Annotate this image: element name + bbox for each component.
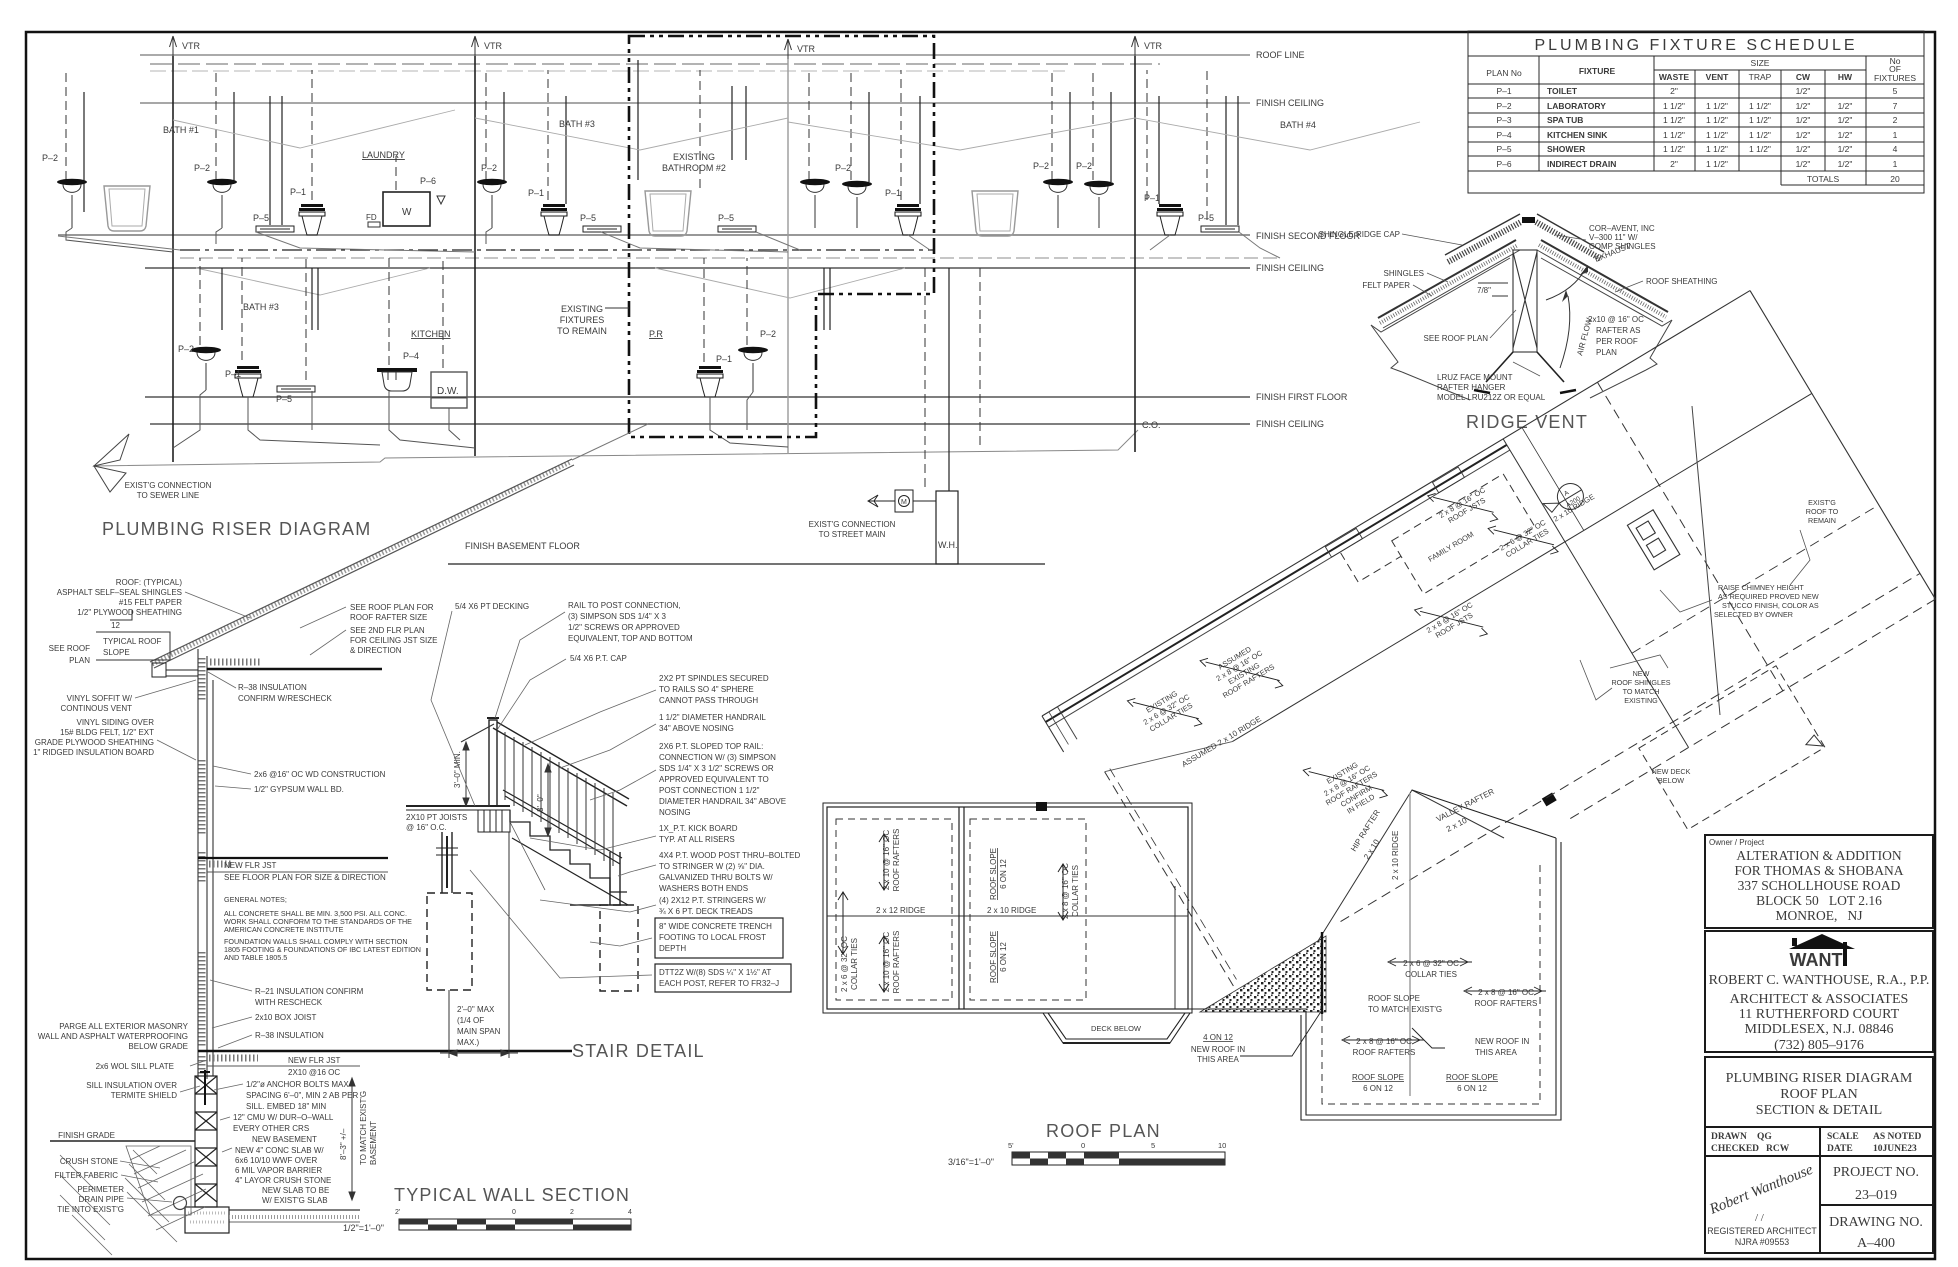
svg-text:SPACING 6'–0", MIN 2 AB PER: SPACING 6'–0", MIN 2 AB PER: [246, 1091, 358, 1100]
svg-text:NEW: NEW: [1633, 669, 1650, 678]
svg-text:ROOF RAFTERS: ROOF RAFTERS: [1475, 999, 1538, 1008]
svg-text:FIXTURES: FIXTURES: [560, 315, 605, 325]
svg-text:FELT PAPER: FELT PAPER: [1362, 281, 1410, 290]
svg-text:12: 12: [111, 621, 120, 630]
svg-text:DRAIN PIPE: DRAIN PIPE: [79, 1195, 124, 1204]
svg-text:PROJECT NO.: PROJECT NO.: [1833, 1165, 1919, 1180]
svg-text:EXISTING: EXISTING: [561, 304, 603, 314]
svg-text:P–2: P–2: [1076, 161, 1092, 171]
svg-text:P–1: P–1: [290, 187, 306, 197]
svg-text:SPA TUB: SPA TUB: [1547, 115, 1583, 125]
svg-text:SILL. EMBED 18" MIN: SILL. EMBED 18" MIN: [246, 1102, 326, 1111]
svg-text:P–2: P–2: [481, 163, 497, 173]
svg-text:CONNECTION W/ (3) SIMPSON: CONNECTION W/ (3) SIMPSON: [659, 753, 776, 762]
svg-text:W.H.: W.H.: [938, 540, 958, 550]
svg-text:THIS AREA: THIS AREA: [1475, 1048, 1517, 1057]
svg-text:P–6: P–6: [1496, 159, 1511, 169]
svg-text:1 1/2": 1 1/2": [1706, 144, 1728, 154]
svg-text:ALTERATION & ADDITION: ALTERATION & ADDITION: [1736, 848, 1901, 863]
svg-text:2x10 @ 16" OC: 2x10 @ 16" OC: [1588, 315, 1644, 324]
svg-text:TIE INTO EXIST'G: TIE INTO EXIST'G: [57, 1205, 124, 1214]
svg-text:FOR THOMAS & SHOBANA: FOR THOMAS & SHOBANA: [1735, 863, 1904, 878]
svg-text:HW: HW: [1838, 72, 1853, 82]
svg-text:NEW FLR JST: NEW FLR JST: [224, 861, 277, 870]
svg-text:PLUMBING RISER DIAGRAM: PLUMBING RISER DIAGRAM: [102, 519, 371, 539]
svg-text:W: W: [402, 207, 412, 218]
svg-text:AMERICAN CONCRETE INSTITUTE: AMERICAN CONCRETE INSTITUTE: [224, 925, 344, 934]
svg-text:2 x 8 @ 16" OC: 2 x 8 @ 16" OC: [1478, 988, 1534, 997]
svg-text:4" LAYOR CRUSH STONE: 4" LAYOR CRUSH STONE: [235, 1176, 331, 1185]
svg-text:SEE ROOF: SEE ROOF: [49, 644, 90, 653]
svg-text:1/2": 1/2": [1796, 115, 1811, 125]
svg-text:DIAMETER HANDRAIL 34" ABOVE: DIAMETER HANDRAIL 34" ABOVE: [659, 797, 786, 806]
svg-text:GRADE PLYWOOD SHEATHING: GRADE PLYWOOD SHEATHING: [35, 738, 154, 747]
svg-text:PLAN No: PLAN No: [1486, 68, 1522, 78]
svg-text:FINISH CEILING: FINISH CEILING: [1256, 98, 1324, 108]
svg-text:COLLAR TIES: COLLAR TIES: [850, 938, 859, 990]
svg-text:ROOF RAFTERS: ROOF RAFTERS: [892, 829, 901, 892]
svg-text:P–4: P–4: [1496, 130, 1511, 140]
svg-text:1 1/2": 1 1/2": [1749, 144, 1771, 154]
svg-text:SECTION & DETAIL: SECTION & DETAIL: [1756, 1103, 1882, 1118]
svg-text:NEW BASEMENT: NEW BASEMENT: [252, 1135, 317, 1144]
svg-text:NEW ROOF IN: NEW ROOF IN: [1475, 1037, 1529, 1046]
svg-text:2x6 @16" OC WD CONSTRUCTION: 2x6 @16" OC WD CONSTRUCTION: [254, 770, 386, 779]
svg-text:EACH POST, REFER TO FR32–J: EACH POST, REFER TO FR32–J: [659, 979, 779, 988]
svg-text:2X2 PT SPINDLES SECURED: 2X2 PT SPINDLES SECURED: [659, 674, 769, 683]
svg-text:NEW FLR JST: NEW FLR JST: [288, 1056, 341, 1065]
svg-text:KITCHEN: KITCHEN: [411, 329, 451, 339]
svg-text:7: 7: [1893, 101, 1898, 111]
svg-text:2 x 8 @ 16" OC: 2 x 8 @ 16" OC: [1061, 863, 1070, 919]
svg-text:BATH #3: BATH #3: [559, 119, 595, 129]
svg-text:15# BLDG FELT, 1/2" EXT: 15# BLDG FELT, 1/2" EXT: [60, 728, 154, 737]
svg-text:P–2: P–2: [760, 329, 776, 339]
svg-text:WANT: WANT: [1790, 950, 1843, 970]
svg-text:SIZE: SIZE: [1751, 58, 1770, 68]
svg-text:RIDGE VENT: RIDGE VENT: [1466, 412, 1588, 432]
svg-text:2X6 P.T. SLOPED TOP RAIL:: 2X6 P.T. SLOPED TOP RAIL:: [659, 742, 763, 751]
svg-text:PLUMBING FIXTURE SCHEDULE: PLUMBING FIXTURE SCHEDULE: [1534, 37, 1857, 54]
svg-text:FOOTING TO LOCAL FROST: FOOTING TO LOCAL FROST: [659, 933, 766, 942]
svg-text:REMAIN: REMAIN: [1808, 516, 1836, 525]
svg-text:M: M: [901, 499, 907, 506]
svg-text:FD: FD: [366, 213, 377, 222]
svg-text:6 ON 12: 6 ON 12: [999, 942, 1008, 972]
svg-text:KITCHEN SINK: KITCHEN SINK: [1547, 130, 1608, 140]
svg-text:TO STRINGER W (2) ⅝" DIA.: TO STRINGER W (2) ⅝" DIA.: [659, 862, 765, 871]
svg-text:P–5: P–5: [580, 213, 596, 223]
svg-text:34" ABOVE NOSING: 34" ABOVE NOSING: [659, 724, 734, 733]
svg-text:1/2": 1/2": [1838, 144, 1853, 154]
svg-text:TYP. AT ALL RISERS: TYP. AT ALL RISERS: [659, 835, 735, 844]
svg-text:2: 2: [1893, 115, 1898, 125]
svg-text:TOTALS: TOTALS: [1807, 174, 1840, 184]
svg-text:P–1: P–1: [1144, 193, 1160, 203]
svg-text:COMP SHINGLES: COMP SHINGLES: [1589, 242, 1656, 251]
svg-text:DATE: DATE: [1827, 1144, 1853, 1154]
svg-text:2 x 10 RIDGE: 2 x 10 RIDGE: [987, 906, 1036, 915]
svg-text:P.R: P.R: [649, 329, 663, 339]
svg-text:1 1/2": 1 1/2": [1663, 115, 1685, 125]
svg-text:4: 4: [628, 1209, 632, 1216]
svg-text:VTR: VTR: [182, 41, 201, 51]
svg-text:MONROE, NJ: MONROE, NJ: [1775, 908, 1862, 923]
svg-text:P–5: P–5: [718, 213, 734, 223]
svg-text:SDS 1/4" X 3 1/2" SCREWS OR: SDS 1/4" X 3 1/2" SCREWS OR: [659, 764, 774, 773]
svg-text:LAUNDRY: LAUNDRY: [362, 150, 405, 160]
svg-text:EXIST'G CONNECTION: EXIST'G CONNECTION: [125, 481, 212, 490]
svg-text:1/2" SCREWS OR APPROVED: 1/2" SCREWS OR APPROVED: [568, 623, 680, 632]
svg-text:P–2: P–2: [835, 163, 851, 173]
svg-text:2 x 6 @ 32" OC: 2 x 6 @ 32" OC: [1403, 959, 1459, 968]
svg-text:6 ON 12: 6 ON 12: [1457, 1084, 1487, 1093]
svg-text:5: 5: [1893, 86, 1898, 96]
svg-text:WALL AND ASPHALT WATERPROOFING: WALL AND ASPHALT WATERPROOFING: [38, 1032, 188, 1041]
svg-text:1 1/2": 1 1/2": [1749, 101, 1771, 111]
svg-text:SEE ROOF PLAN FOR: SEE ROOF PLAN FOR: [350, 603, 434, 612]
svg-text:DEPTH: DEPTH: [659, 944, 686, 953]
svg-text:NOSING: NOSING: [659, 808, 691, 817]
svg-text:TO SEWER LINE: TO SEWER LINE: [137, 491, 200, 500]
svg-text:A–400: A–400: [1857, 1236, 1895, 1251]
svg-text:ROOF TO: ROOF TO: [1806, 507, 1839, 516]
svg-text:1/2"ø ANCHOR BOLTS MAX: 1/2"ø ANCHOR BOLTS MAX: [246, 1080, 349, 1089]
svg-text:BELOW GRADE: BELOW GRADE: [128, 1042, 188, 1051]
svg-text:20: 20: [1890, 174, 1900, 184]
svg-text:ROOF SHEATHING: ROOF SHEATHING: [1646, 277, 1717, 286]
svg-text:DTT2Z W/(8) SDS ¼" X 1½" AT: DTT2Z W/(8) SDS ¼" X 1½" AT: [659, 968, 771, 977]
svg-text:2: 2: [570, 1209, 574, 1216]
svg-text:SHOWER: SHOWER: [1547, 144, 1585, 154]
svg-text:FILTER FABERIC: FILTER FABERIC: [55, 1171, 119, 1180]
svg-text:PLAN: PLAN: [1596, 348, 1617, 357]
svg-text:NEW DECK: NEW DECK: [1652, 767, 1691, 776]
svg-text:(1/4 OF: (1/4 OF: [457, 1016, 484, 1025]
svg-text:/ /: / /: [1755, 1212, 1765, 1224]
svg-text:P–1: P–1: [225, 369, 241, 379]
svg-text:P–2: P–2: [194, 163, 210, 173]
svg-text:CHECKED: CHECKED: [1711, 1144, 1759, 1154]
svg-text:W/ EXIST'G SLAB: W/ EXIST'G SLAB: [262, 1196, 328, 1205]
svg-text:EXISTING: EXISTING: [673, 152, 715, 162]
svg-text:VENT: VENT: [1706, 72, 1729, 82]
svg-text:R–38 INSULATION: R–38 INSULATION: [255, 1031, 324, 1040]
svg-text:SEE FLOOR PLAN FOR SIZE & DIRE: SEE FLOOR PLAN FOR SIZE & DIRECTION: [224, 873, 386, 882]
svg-text:3'–0": 3'–0": [536, 794, 545, 812]
svg-text:P–3: P–3: [1496, 115, 1511, 125]
svg-text:P–2: P–2: [1496, 101, 1511, 111]
svg-text:ARCHITECT & ASSOCIATES: ARCHITECT & ASSOCIATES: [1730, 992, 1909, 1007]
svg-text:2 x 6 @ 32" OC: 2 x 6 @ 32" OC: [840, 936, 849, 992]
svg-text:APPROVED EQUIVALENT TO: APPROVED EQUIVALENT TO: [659, 775, 769, 784]
svg-text:2 x 12 RIDGE: 2 x 12 RIDGE: [876, 906, 925, 915]
svg-text:ROOF PLAN: ROOF PLAN: [1046, 1121, 1161, 1141]
svg-text:TERMITE SHIELD: TERMITE SHIELD: [111, 1091, 177, 1100]
svg-text:2 x 8 @ 16" OC: 2 x 8 @ 16" OC: [1356, 1037, 1412, 1046]
svg-text:VINYL SIDING OVER: VINYL SIDING OVER: [77, 718, 155, 727]
svg-text:SELECTED BY OWNER: SELECTED BY OWNER: [1714, 610, 1793, 619]
svg-text:SHINGLES: SHINGLES: [1384, 269, 1424, 278]
svg-text:FINISH CEILING: FINISH CEILING: [1256, 263, 1324, 273]
svg-text:DRAWN: DRAWN: [1711, 1132, 1747, 1142]
svg-text:ROOF RAFTERS: ROOF RAFTERS: [892, 931, 901, 994]
svg-text:1 1/2": 1 1/2": [1663, 101, 1685, 111]
svg-text:ROOF SLOPE: ROOF SLOPE: [1352, 1073, 1404, 1082]
svg-text:VTR: VTR: [484, 41, 503, 51]
svg-text:ROOF PLAN: ROOF PLAN: [1780, 1087, 1857, 1102]
svg-text:CRUSH STONE: CRUSH STONE: [60, 1157, 118, 1166]
svg-text:1: 1: [1893, 159, 1898, 169]
svg-text:C.O.: C.O.: [1142, 420, 1161, 430]
svg-text:1 1/2": 1 1/2": [1706, 115, 1728, 125]
svg-text:FOR CEILING JST SIZE: FOR CEILING JST SIZE: [350, 636, 437, 645]
svg-text:(732) 805–9176: (732) 805–9176: [1774, 1038, 1864, 1053]
svg-text:P–1: P–1: [885, 188, 901, 198]
svg-text:FINISH GRADE: FINISH GRADE: [58, 1131, 115, 1140]
svg-text:SLOPE: SLOPE: [103, 648, 130, 657]
svg-text:2'–0" MAX: 2'–0" MAX: [457, 1005, 495, 1014]
svg-text:P–1: P–1: [716, 354, 732, 364]
svg-text:ASPHALT SELF–SEAL SHINGLES: ASPHALT SELF–SEAL SHINGLES: [57, 588, 182, 597]
svg-text:ROOF SLOPE: ROOF SLOPE: [1446, 1073, 1498, 1082]
svg-text:1/2": 1/2": [1796, 130, 1811, 140]
svg-text:EXIST'G: EXIST'G: [1808, 498, 1836, 507]
svg-text:TO MATCH: TO MATCH: [1623, 687, 1660, 696]
svg-text:1 1/2": 1 1/2": [1749, 115, 1771, 125]
svg-text:VTR: VTR: [1144, 41, 1163, 51]
svg-text:D.W.: D.W.: [437, 386, 459, 397]
svg-text:INDIRECT DRAIN: INDIRECT DRAIN: [1547, 159, 1616, 169]
svg-text:4X4 P.T. WOOD POST THRU–BOLTED: 4X4 P.T. WOOD POST THRU–BOLTED: [659, 851, 800, 860]
svg-text:7/8": 7/8": [1477, 286, 1491, 295]
svg-text:PLAN: PLAN: [69, 656, 90, 665]
svg-text:LABORATORY: LABORATORY: [1547, 101, 1606, 111]
svg-text:1/2" PLYWOOD SHEATHING: 1/2" PLYWOOD SHEATHING: [77, 608, 182, 617]
svg-text:FINISH FIRST FLOOR: FINISH FIRST FLOOR: [1256, 392, 1348, 402]
svg-text:SCALE: SCALE: [1827, 1132, 1859, 1142]
svg-text:AS REQUIRED PROVED NEW: AS REQUIRED PROVED NEW: [1718, 592, 1819, 601]
svg-text:AS NOTED: AS NOTED: [1873, 1132, 1921, 1142]
svg-text:1" RIDGED INSULATION BOARD: 1" RIDGED INSULATION BOARD: [33, 748, 154, 757]
svg-text:P–2: P–2: [42, 153, 58, 163]
svg-text:2x6 WOL SILL PLATE: 2x6 WOL SILL PLATE: [96, 1062, 174, 1071]
svg-text:0: 0: [1081, 1141, 1085, 1150]
svg-text:COLLAR TIES: COLLAR TIES: [1071, 865, 1080, 917]
svg-text:5: 5: [1151, 1141, 1155, 1150]
svg-text:VTR: VTR: [797, 44, 816, 54]
svg-text:GENERAL NOTES;: GENERAL NOTES;: [224, 895, 287, 904]
svg-text:FINISH BASEMENT FLOOR: FINISH BASEMENT FLOOR: [465, 541, 580, 551]
svg-text:TO REMAIN: TO REMAIN: [557, 326, 607, 336]
svg-text:6x6 10/10 WWF OVER: 6x6 10/10 WWF OVER: [235, 1156, 317, 1165]
svg-text:MAIN SPAN: MAIN SPAN: [457, 1027, 501, 1036]
svg-text:337 SCHOLLHOUSE ROAD: 337 SCHOLLHOUSE ROAD: [1738, 878, 1901, 893]
svg-text:1 1/2": 1 1/2": [1663, 130, 1685, 140]
svg-text:BLOCK 50 LOT 2.16: BLOCK 50 LOT 2.16: [1756, 893, 1882, 908]
svg-text:COR–AVENT, INC: COR–AVENT, INC: [1589, 224, 1655, 233]
svg-text:5/4 X6 PT DECKING: 5/4 X6 PT DECKING: [455, 602, 529, 611]
svg-text:5/4 X6 P.T. CAP: 5/4 X6 P.T. CAP: [570, 654, 627, 663]
svg-text:TOILET: TOILET: [1547, 86, 1578, 96]
svg-text:ROOF LINE: ROOF LINE: [1256, 50, 1305, 60]
svg-text:DECK BELOW: DECK BELOW: [1091, 1024, 1142, 1033]
svg-text:ROOF SHINGLES: ROOF SHINGLES: [1611, 678, 1670, 687]
svg-text:TO RAILS SO 4" SPHERE: TO RAILS SO 4" SPHERE: [659, 685, 754, 694]
svg-text:CW: CW: [1796, 72, 1811, 82]
svg-text:BATH #3: BATH #3: [243, 302, 279, 312]
svg-text:4: 4: [1893, 144, 1898, 154]
svg-text:EVERY OTHER CRS: EVERY OTHER CRS: [233, 1124, 309, 1133]
svg-text:1 1/2": 1 1/2": [1706, 101, 1728, 111]
svg-text:STAIR DETAIL: STAIR DETAIL: [572, 1041, 705, 1061]
svg-text:1/2": 1/2": [1838, 130, 1853, 140]
svg-text:ROOF SLOPE: ROOF SLOPE: [989, 931, 998, 983]
svg-text:DRAWING NO.: DRAWING NO.: [1829, 1215, 1923, 1230]
svg-text:CANNOT PASS THROUGH: CANNOT PASS THROUGH: [659, 696, 758, 705]
svg-text:V–300 11" W/: V–300 11" W/: [1589, 233, 1638, 242]
svg-text:EXISTING: EXISTING: [1624, 696, 1658, 705]
svg-text:1/2"=1'–0": 1/2"=1'–0": [343, 1223, 384, 1233]
svg-text:¾ X 6 PT. DECK TREADS: ¾ X 6 PT. DECK TREADS: [659, 907, 753, 916]
svg-text:P–5: P–5: [253, 213, 269, 223]
svg-text:6 ON 12: 6 ON 12: [1363, 1084, 1393, 1093]
svg-text:2': 2': [395, 1209, 400, 1216]
svg-text:11 RUTHERFORD COURT: 11 RUTHERFORD COURT: [1739, 1007, 1900, 1022]
svg-text:6 ON 12: 6 ON 12: [999, 859, 1008, 889]
svg-text:CONFIRM W/RESCHECK: CONFIRM W/RESCHECK: [238, 694, 332, 703]
svg-text:MODEL LRU212Z OR EQUAL: MODEL LRU212Z OR EQUAL: [1437, 393, 1546, 402]
svg-text:POST CONNECTION 1 1/2": POST CONNECTION 1 1/2": [659, 786, 760, 795]
svg-text:PERIMETER: PERIMETER: [77, 1185, 124, 1194]
svg-text:1/2": 1/2": [1838, 101, 1853, 111]
svg-text:P–4: P–4: [403, 351, 419, 361]
svg-text:ROBERT C. WANTHOUSE, R.A., P.P: ROBERT C. WANTHOUSE, R.A., P.P.: [1709, 973, 1930, 988]
svg-text:NEW ROOF IN: NEW ROOF IN: [1191, 1045, 1245, 1054]
svg-text:BATH #4: BATH #4: [1280, 120, 1316, 130]
svg-text:12" CMU W/ DUR–O–WALL: 12" CMU W/ DUR–O–WALL: [233, 1113, 334, 1122]
svg-text:R–21 INSULATION CONFIRM: R–21 INSULATION CONFIRM: [255, 987, 364, 996]
svg-text:TYPICAL WALL SECTION: TYPICAL WALL SECTION: [394, 1185, 630, 1205]
svg-text:EXIST'G CONNECTION: EXIST'G CONNECTION: [809, 520, 896, 529]
svg-text:2x10 BOX JOIST: 2x10 BOX JOIST: [255, 1013, 316, 1022]
svg-text:ROOF RAFTER SIZE: ROOF RAFTER SIZE: [350, 613, 427, 622]
svg-text:WASHERS BOTH ENDS: WASHERS BOTH ENDS: [659, 884, 748, 893]
svg-text:2X10 @16 OC: 2X10 @16 OC: [288, 1068, 340, 1077]
svg-text:23–019: 23–019: [1855, 1188, 1897, 1203]
svg-text:& DIRECTION: & DIRECTION: [350, 646, 402, 655]
svg-text:GALVANIZED THRU BOLTS W/: GALVANIZED THRU BOLTS W/: [659, 873, 773, 882]
svg-text:P–5: P–5: [276, 394, 292, 404]
svg-text:1 1/2": 1 1/2": [1749, 130, 1771, 140]
svg-text:MIDDLESEX, N.J. 08846: MIDDLESEX, N.J. 08846: [1745, 1022, 1894, 1037]
svg-text:RAFTER AS: RAFTER AS: [1596, 326, 1640, 335]
svg-text:AND TABLE 1805.5: AND TABLE 1805.5: [224, 953, 287, 962]
svg-text:BATH #1: BATH #1: [163, 125, 199, 135]
svg-text:5': 5': [1008, 1141, 1014, 1150]
svg-text:ROOF RAFTERS: ROOF RAFTERS: [1353, 1048, 1416, 1057]
svg-text:@ 16" O.C.: @ 16" O.C.: [406, 823, 447, 832]
svg-text:ROOF: (TYPICAL): ROOF: (TYPICAL): [116, 578, 183, 587]
svg-text:SEE 2ND FLR PLAN: SEE 2ND FLR PLAN: [350, 626, 425, 635]
svg-text:FIXTURE: FIXTURE: [1579, 66, 1616, 76]
svg-text:P–5: P–5: [1198, 213, 1214, 223]
svg-text:TO MATCH EXIST'G: TO MATCH EXIST'G: [1368, 1005, 1442, 1014]
svg-text:R–38 INSULATION: R–38 INSULATION: [238, 683, 307, 692]
svg-text:PER ROOF: PER ROOF: [1596, 337, 1638, 346]
svg-text:TYPICAL ROOF: TYPICAL ROOF: [103, 637, 161, 646]
svg-text:1/2": 1/2": [1838, 159, 1853, 169]
svg-text:2 x 10 RIDGE: 2 x 10 RIDGE: [1391, 831, 1400, 880]
svg-text:LRUZ FACE MOUNT: LRUZ FACE MOUNT: [1437, 373, 1513, 382]
svg-text:WITH RESCHECK: WITH RESCHECK: [255, 998, 323, 1007]
svg-text:1X_P.T. KICK BOARD: 1X_P.T. KICK BOARD: [659, 824, 738, 833]
svg-text:P–2: P–2: [1033, 161, 1049, 171]
svg-text:6 MIL VAPOR BARRIER: 6 MIL VAPOR BARRIER: [235, 1166, 322, 1175]
svg-text:SILL INSULATION OVER: SILL INSULATION OVER: [86, 1081, 177, 1090]
svg-text:10: 10: [1218, 1141, 1226, 1150]
svg-text:8'–3" +/–: 8'–3" +/–: [339, 1128, 348, 1160]
svg-text:CONTINOUS VENT: CONTINOUS VENT: [60, 704, 132, 713]
svg-text:P–1: P–1: [528, 188, 544, 198]
svg-text:RAISE CHIMNEY HEIGHT: RAISE CHIMNEY HEIGHT: [1718, 583, 1804, 592]
svg-text:P–1: P–1: [1496, 86, 1511, 96]
svg-text:NEW 4" CONC SLAB W/: NEW 4" CONC SLAB W/: [235, 1146, 324, 1155]
svg-text:RCW: RCW: [1766, 1144, 1790, 1154]
svg-text:1 1/2": 1 1/2": [1706, 159, 1728, 169]
svg-text:4 ON 12: 4 ON 12: [1203, 1033, 1233, 1042]
svg-text:(4) 2X12 P.T. STRINGERS W/: (4) 2X12 P.T. STRINGERS W/: [659, 896, 766, 905]
svg-text:8" WIDE CONCRETE TRENCH: 8" WIDE CONCRETE TRENCH: [659, 922, 772, 931]
svg-text:COLLAR TIES: COLLAR TIES: [1405, 970, 1457, 979]
svg-text:EQUIVALENT, TOP AND BOTTOM: EQUIVALENT, TOP AND BOTTOM: [568, 634, 693, 643]
svg-text:1/2": 1/2": [1796, 159, 1811, 169]
svg-text:3/16"=1'–0": 3/16"=1'–0": [948, 1157, 994, 1167]
svg-text:SEE ROOF PLAN: SEE ROOF PLAN: [1424, 334, 1489, 343]
svg-text:Owner / Project: Owner / Project: [1709, 838, 1765, 847]
svg-text:1 1/2": 1 1/2": [1706, 130, 1728, 140]
svg-text:SHINGLE RIDGE CAP: SHINGLE RIDGE CAP: [1319, 230, 1400, 239]
svg-text:P–2: P–2: [178, 344, 194, 354]
svg-text:TO STREET MAIN: TO STREET MAIN: [819, 530, 886, 539]
svg-text:BATHROOM #2: BATHROOM #2: [662, 163, 726, 173]
svg-text:PARGE ALL EXTERIOR MASONRY: PARGE ALL EXTERIOR MASONRY: [59, 1022, 188, 1031]
svg-text:BASEMENT: BASEMENT: [369, 1121, 378, 1165]
svg-text:2": 2": [1670, 86, 1678, 96]
svg-text:PLUMBING RISER DIAGRAM: PLUMBING RISER DIAGRAM: [1726, 1071, 1913, 1086]
svg-text:1 1/2" DIAMETER HANDRAIL: 1 1/2" DIAMETER HANDRAIL: [659, 713, 766, 722]
svg-text:NJRA #09553: NJRA #09553: [1735, 1237, 1789, 1247]
svg-text:QG: QG: [1757, 1132, 1772, 1142]
svg-text:1/2" GYPSUM WALL BD.: 1/2" GYPSUM WALL BD.: [254, 785, 344, 794]
svg-text:ROOF SLOPE: ROOF SLOPE: [989, 848, 998, 900]
svg-text:1/2": 1/2": [1796, 101, 1811, 111]
svg-text:REGISTERED ARCHITECT: REGISTERED ARCHITECT: [1707, 1226, 1817, 1236]
svg-text:P–5: P–5: [1496, 144, 1511, 154]
svg-text:FINISH CEILING: FINISH CEILING: [1256, 419, 1324, 429]
svg-text:1/2": 1/2": [1796, 144, 1811, 154]
svg-text:#15 FELT PAPER: #15 FELT PAPER: [119, 598, 182, 607]
svg-text:MAX.): MAX.): [457, 1038, 480, 1047]
svg-text:RAIL TO POST CONNECTION,: RAIL TO POST CONNECTION,: [568, 601, 681, 610]
svg-text:1/2": 1/2": [1796, 86, 1811, 96]
svg-text:THIS AREA: THIS AREA: [1197, 1055, 1239, 1064]
svg-text:P–6: P–6: [420, 176, 436, 186]
svg-text:1/2": 1/2": [1838, 115, 1853, 125]
svg-text:TRAP: TRAP: [1749, 72, 1772, 82]
svg-text:WASTE: WASTE: [1659, 72, 1690, 82]
svg-text:TO MATCH EXIST'G: TO MATCH EXIST'G: [359, 1091, 368, 1165]
